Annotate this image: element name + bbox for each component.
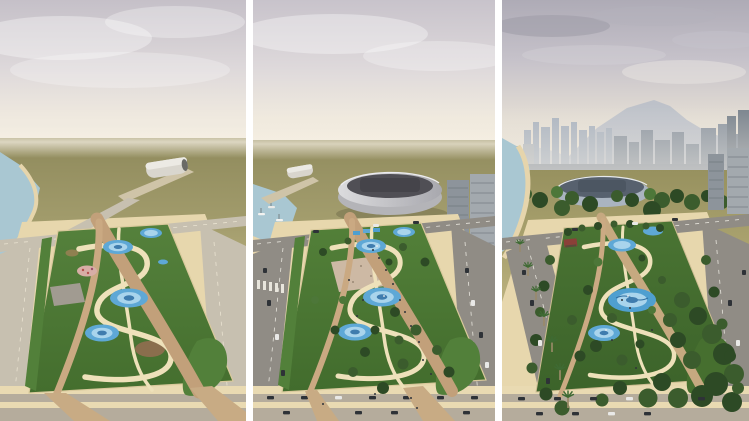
panel-phase-3 [502, 0, 749, 421]
panel-phase-1 [0, 0, 246, 421]
phase-1-render [0, 0, 246, 421]
playground [77, 266, 97, 277]
phase-2-render [253, 0, 495, 421]
phase-3-render [502, 0, 749, 421]
architectural-render-triptych [0, 0, 749, 421]
panel-phase-2 [253, 0, 495, 421]
red-roof-pavilion [564, 238, 578, 247]
